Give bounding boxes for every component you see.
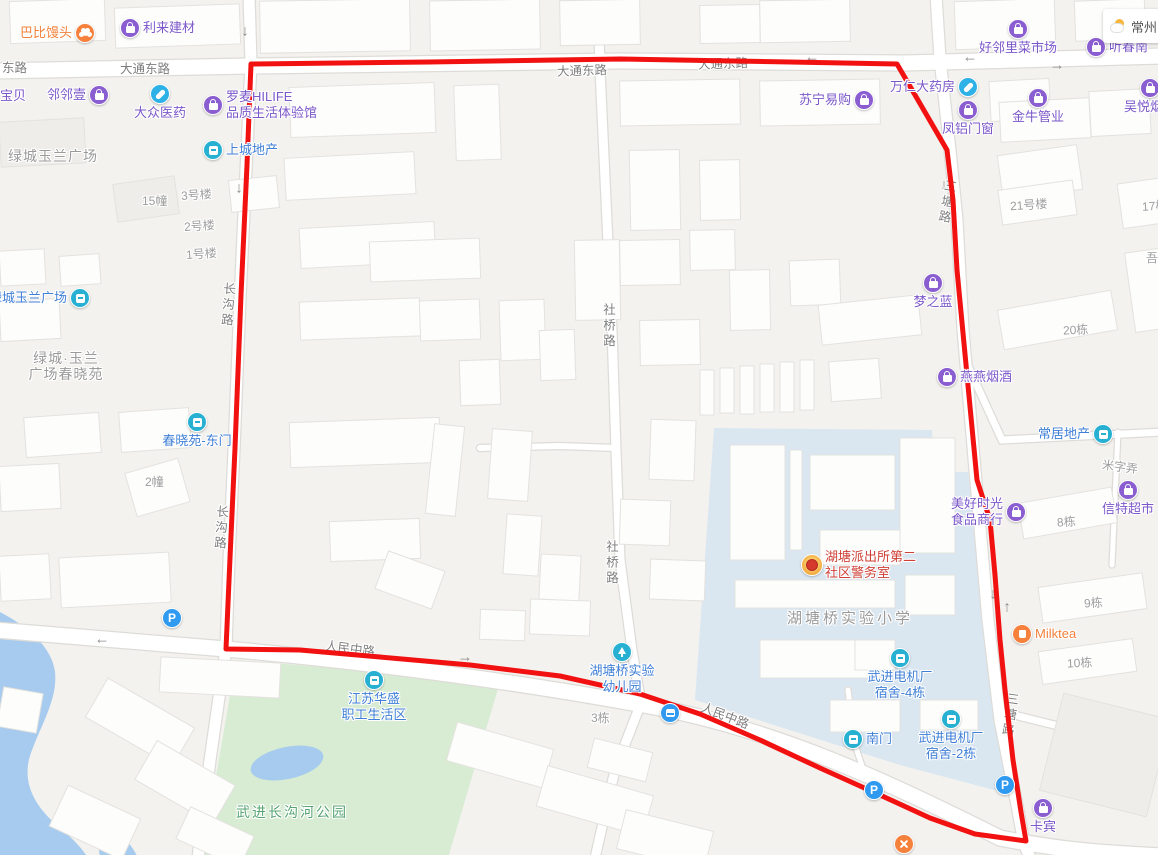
south-gate-icon[interactable] [843,729,863,749]
dianjichang-dorm-4-icon[interactable] [890,648,910,668]
milktea-icon[interactable] [1012,624,1032,644]
hutang-police-station-icon[interactable] [801,554,823,576]
jiangsu-huasheng-label[interactable]: 江苏华盛职工生活区 [341,691,406,723]
jinniu-guanye-label[interactable]: 金牛管业 [1012,109,1064,125]
lilai-jiancai-icon[interactable] [120,18,140,38]
shiyan-kindergarten-icon[interactable] [612,642,632,662]
mengzhilan-icon[interactable] [923,273,943,293]
baobei-label[interactable]: 宝贝 [0,88,26,104]
babi-mantou-label[interactable]: 巴比馒头 [20,25,72,41]
kabin-icon[interactable] [1033,798,1053,818]
bus-stop-icon[interactable] [660,703,680,723]
shangcheng-dichan-label[interactable]: 上城地产 [226,142,278,158]
food-poi-icon[interactable] [894,834,914,854]
meihao-shiguang-icon[interactable] [1006,502,1026,522]
linlin-yi-icon[interactable] [89,85,109,105]
wuyue-yanjiu-icon[interactable] [1140,78,1158,98]
map-canvas[interactable]: ↓↓←←→↓↓←→↓↑↓ 东路大通东路大通东路大通东路人民中路人民中路长沟路长沟… [0,0,1158,855]
weather-sun-cloud-icon [1110,19,1126,33]
parking-2-icon[interactable]: P [864,780,884,800]
poi-layer: 巴比馒头利来建材好邻里菜市场听春南邻邻壹宝贝大众医药罗麦HILIFE品质生活体验… [0,0,1158,855]
dazhong-yiyao-label[interactable]: 大众医药 [134,105,186,121]
jinniu-guanye-icon[interactable] [1028,88,1048,108]
kabin-label[interactable]: 卡宾 [1030,819,1056,835]
dazhong-yiyao-icon[interactable] [150,84,170,104]
yanyan-yanjiu-label[interactable]: 燕燕烟酒 [960,369,1012,385]
chunxiaoyuan-east-gate-label[interactable]: 春晓苑-东门 [162,433,231,449]
dianjichang-dorm-4-label[interactable]: 武进电机厂宿舍-4栋 [867,669,932,701]
dianjichang-dorm-2-icon[interactable] [941,709,961,729]
shiyan-kindergarten-label[interactable]: 湖塘桥实验幼儿园 [589,663,654,695]
suning-label[interactable]: 苏宁易购 [799,92,851,108]
wuyue-yanjiu-label[interactable]: 吴悦烟酒 [1124,99,1158,115]
hutang-police-station-label[interactable]: 湖塘派出所第二社区警务室 [825,549,916,581]
jiangsu-huasheng-icon[interactable] [364,670,384,690]
mengzhilan-label[interactable]: 梦之蓝 [913,294,952,310]
meihao-shiguang-label[interactable]: 美好时光食品商行 [951,496,1003,528]
babi-mantou-icon[interactable] [75,23,95,43]
yanyan-yanjiu-icon[interactable] [937,367,957,387]
luomai-hilife-icon[interactable] [203,95,223,115]
luomai-hilife-label[interactable]: 罗麦HILIFE品质生活体验馆 [226,89,317,121]
parking-1-icon[interactable]: P [162,608,182,628]
lvcheng-plaza-gate-label[interactable]: 绿城玉兰广场 [0,290,67,306]
milktea-label[interactable]: Milktea [1035,626,1076,642]
wanren-yaofang-icon[interactable] [958,77,978,97]
weather-widget[interactable]: 常州 [1103,9,1158,43]
haolinli-market-icon[interactable] [1008,19,1028,39]
xinte-chaoshi-icon[interactable] [1118,480,1138,500]
lilai-jiancai-label[interactable]: 利来建材 [143,20,195,36]
changju-dichan-label[interactable]: 常居地产 [1038,426,1090,442]
shangcheng-dichan-icon[interactable] [203,140,223,160]
suning-icon[interactable] [854,90,874,110]
dianjichang-dorm-2-label[interactable]: 武进电机厂宿舍-2栋 [918,730,983,762]
lvcheng-plaza-gate-icon[interactable] [70,288,90,308]
wanren-yaofang-label[interactable]: 万仁大药房 [890,79,955,95]
chunxiaoyuan-east-gate-icon[interactable] [187,412,207,432]
fenglv-menchuang-icon[interactable] [958,100,978,120]
linlin-yi-label[interactable]: 邻邻壹 [47,87,86,103]
haolinli-market-label[interactable]: 好邻里菜市场 [979,40,1057,56]
changju-dichan-icon[interactable] [1093,424,1113,444]
fenglv-menchuang-label[interactable]: 凤铝门窗 [942,121,994,137]
weather-city: 常州 [1131,17,1157,36]
parking-3-icon[interactable]: P [995,775,1015,795]
south-gate-label[interactable]: 南门 [866,731,892,747]
xinte-chaoshi-label[interactable]: 信特超市 [1102,501,1154,517]
